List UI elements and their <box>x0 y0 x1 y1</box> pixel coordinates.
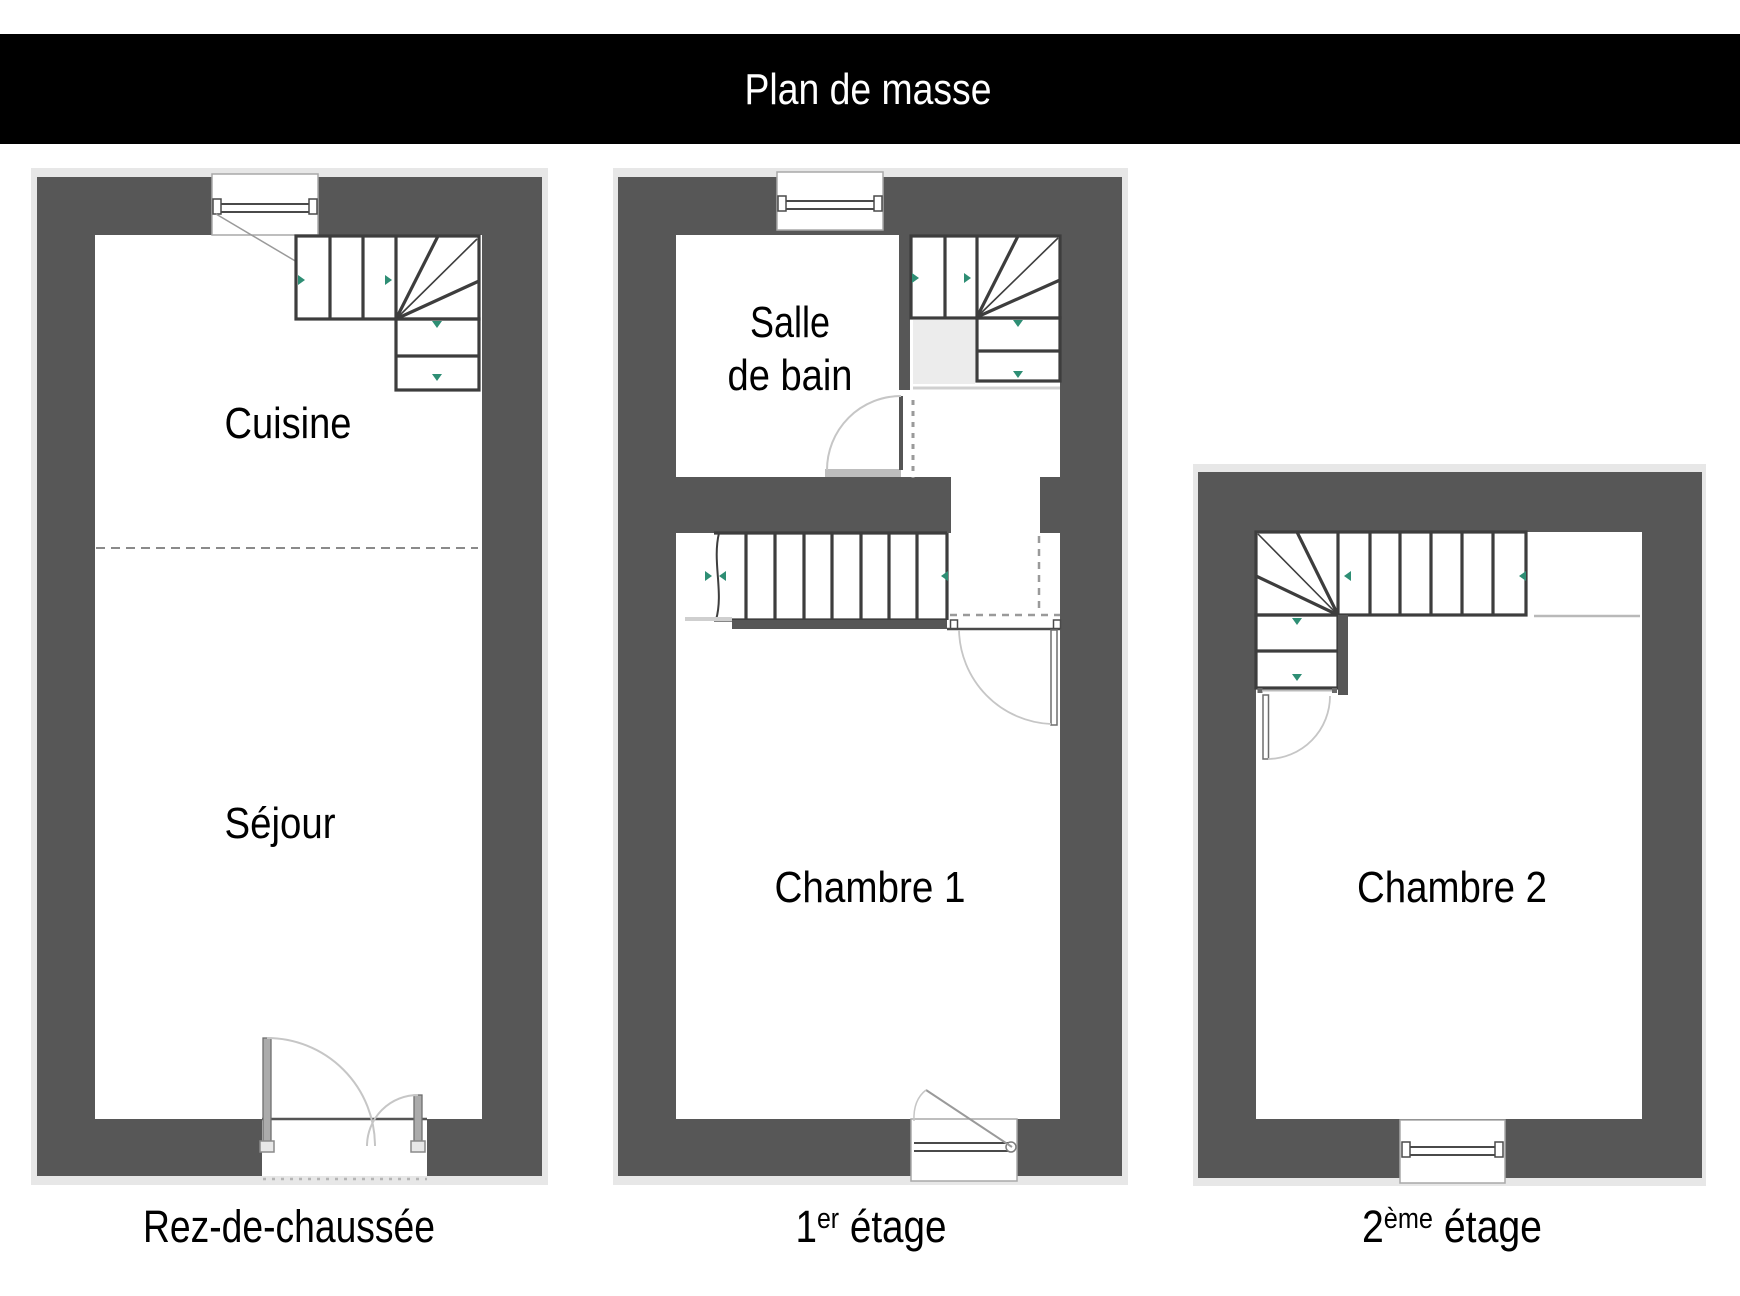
svg-text:Chambre 1: Chambre 1 <box>775 863 966 912</box>
svg-text:Cuisine: Cuisine <box>225 399 352 448</box>
svg-text:Chambre 2: Chambre 2 <box>1357 863 1547 912</box>
svg-text:de bain: de bain <box>728 351 853 400</box>
svg-text:Plan de masse: Plan de masse <box>745 65 992 114</box>
svg-text:Séjour: Séjour <box>225 799 336 848</box>
svg-text:Salle: Salle <box>750 298 830 347</box>
svg-text:Rez-de-chaussée: Rez-de-chaussée <box>143 1201 435 1252</box>
